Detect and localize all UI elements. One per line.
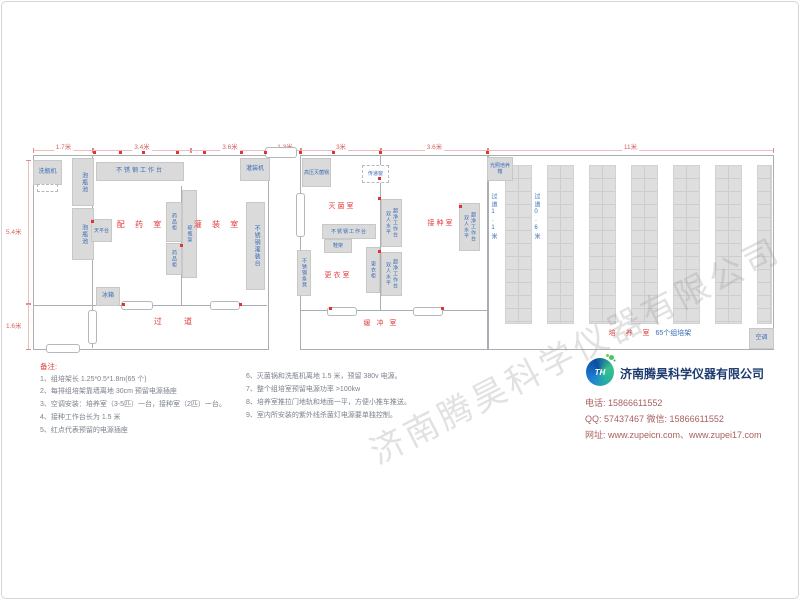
aisle-width-label-2: 过道0.6米 [532,193,541,308]
clean-bench-2: 双人水平超净工作台 [381,252,402,296]
air-conditioner: 空调 [749,328,774,349]
fridge: 冰箱 [96,287,120,306]
note-item: 6、灭菌锅和洗瓶机离地 1.5 米，预留 380v 电源。 [246,372,461,383]
logo-leaf-dots-icon [609,355,614,360]
power-outlet-dot [176,151,179,154]
door-wash-corridor [88,310,97,344]
medicine-cabinet-2: 药品柜 [166,243,182,275]
notes-right-column: 6、灭菌锅和洗瓶机离地 1.5 米，预留 380v 电源。 7、整个组培室预留电… [246,372,461,423]
culture-rack-2 [547,165,574,324]
dim-top-6: 3.6米 [380,148,489,153]
autoclave: 高压灭菌锅 [302,158,331,187]
power-outlet-dot [332,151,335,154]
power-outlet-dot [240,151,243,154]
power-outlet-dot [203,151,206,154]
power-outlet-dot [91,220,94,223]
power-outlet-dot [378,197,381,200]
small-stand [37,184,58,192]
locker: 更衣柜 [366,247,380,293]
room-label-sterilizing: 灭菌室 [320,203,364,210]
aisle-width-label-1: 过道1.1米 [489,193,498,308]
power-outlet-dot [378,250,381,253]
soaking-pool-1: 泡瓶池 [72,158,94,206]
dim-left-2: 1.6米 [26,303,31,350]
note-item: 3、空调安装：培养室（3-5匹）一台，接种室（2匹）一台。 [40,400,245,411]
floorplan-page: { "watermark": "济南腾昊科学仪器有限公司", "dimensio… [0,0,800,600]
bottle-washer: 洗瓶机 [33,160,62,185]
company-logo-icon: TH [586,358,614,386]
shoe-rack: 鞋架 [324,239,352,253]
clean-bench-1: 双人水平超净工作台 [381,199,402,247]
power-outlet-dot [486,151,489,154]
balance-table: 天平台 [91,219,112,242]
culture-rack-6 [715,165,742,324]
power-outlet-dot [299,151,302,154]
door-corridor-exit [46,344,80,353]
ss-filling-table: 不锈钢灌装台 [246,202,265,290]
door-dispensing-corridor [121,301,153,310]
company-website: 网址: www.zupeicn.com、www.zupei17.com [585,428,762,441]
note-item: 9、室内所安装的紫外线杀菌灯电源要单独控制。 [246,411,461,422]
bottle-rack: 晾瓶架 [182,190,197,278]
notes-title: 备注: [40,361,245,373]
ss-bench: 不锈钢条凳 [297,250,311,296]
clean-bench-3: 双人水平超净工作台 [459,203,480,251]
power-outlet-dot [239,303,242,306]
room-label-buffer: 缓 冲 室 [348,320,414,327]
power-outlet-dot [329,307,332,310]
note-item: 4、接种工作台长为 1.5 米 [40,413,245,424]
door-top-gap [265,147,297,158]
culture-rack-3 [589,165,616,324]
company-qq-wechat: QQ: 57437467 微信: 15866611552 [585,412,724,425]
power-outlet-dot [378,177,381,180]
room-label-filling: 灌 装 室 [193,221,243,229]
door-sterilizing [296,193,305,237]
power-outlet-dot [459,205,462,208]
power-outlet-dot [264,151,267,154]
door-filling-corridor [210,301,240,310]
door-inoculation-buffer [413,307,443,316]
filling-machine: 灌装机 [240,158,270,181]
notes-left-column: 备注: 1、组培架长 1.25*0.5*1.8m(65 个) 2、每排组培架靠墙… [40,361,245,439]
room-label-inoculation: 接种室 [417,220,465,227]
light-incubator: 光照培养箱 [487,157,513,181]
note-item: 7、整个组培室预留电源功率 >100kw [246,385,461,396]
power-outlet-dot [180,244,183,247]
room-label-culture: 培 养 室 65个组培架 [565,330,735,337]
power-outlet-dot [93,151,96,154]
dim-top-1: 1.7米 [33,148,94,153]
dim-top-7: 11米 [487,148,774,153]
note-item: 8、培养室推拉门地轨和地面一平，方便小推车推送。 [246,398,461,409]
culture-rack-7 [757,165,772,324]
dim-left-1: 5.4米 [26,160,31,305]
room-label-dispensing: 配 药 室 [110,221,172,229]
transfer-window: 传递窗 [362,165,389,183]
ss-worktable-dispensing: 不锈钢工作台 [96,162,184,181]
ss-worktable-sterilizing: 不锈钢工作台 [322,224,376,239]
room-label-changing: 更衣室 [317,272,359,279]
room-label-corridor: 过 道 [146,318,210,326]
power-outlet-dot [122,303,125,306]
company-phone: 电话: 15866611552 [585,396,662,409]
note-item: 2、每排组培架靠墙离地 30cm 预留电源插座 [40,387,245,398]
note-item: 1、组培架长 1.25*0.5*1.8m(65 个) [40,375,245,386]
power-outlet-dot [379,151,382,154]
dim-top-3: 3.6米 [190,148,270,153]
dim-top-5: 3米 [300,148,382,153]
culture-rack-5 [673,165,700,324]
power-outlet-dot [142,151,145,154]
culture-rack-1 [505,165,532,324]
power-outlet-dot [441,307,444,310]
company-name: 济南腾昊科学仪器有限公司 [620,365,764,382]
power-outlet-dot [119,151,122,154]
culture-rack-4 [631,165,658,324]
note-item: 5、红点代表预留的电源插座 [40,426,245,437]
